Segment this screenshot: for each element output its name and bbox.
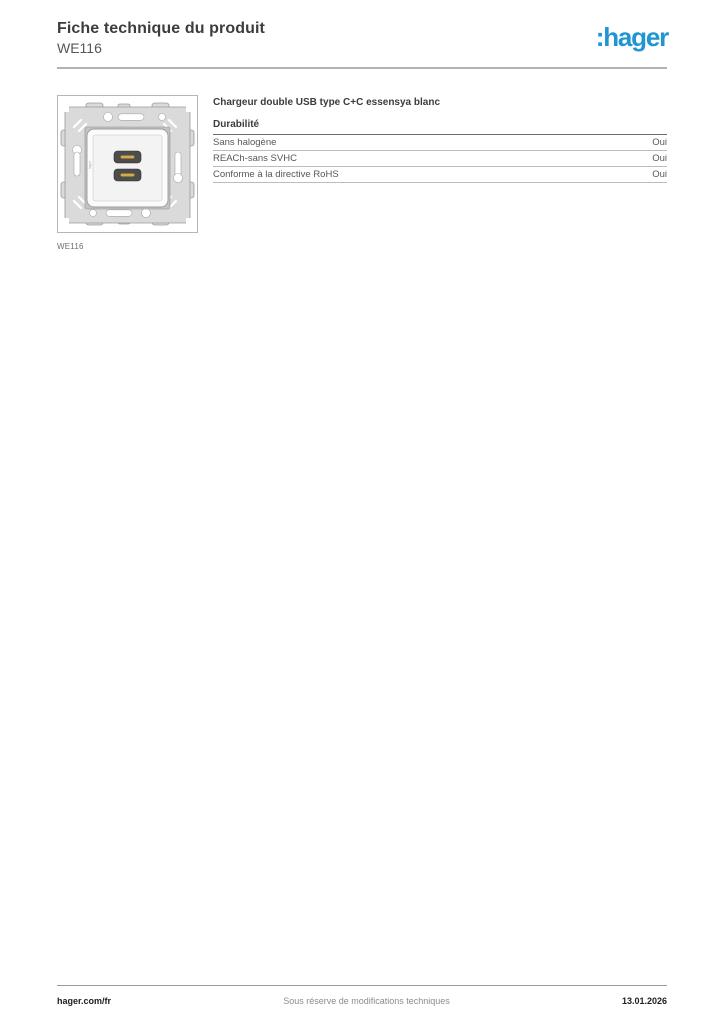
module-brand-marking: hager <box>88 160 92 169</box>
footer-website-link[interactable]: hager.com/fr <box>57 996 111 1006</box>
spec-label: REACh-sans SVHC <box>213 153 297 164</box>
product-image-frame: hager <box>57 95 198 233</box>
footer-date: 13.01.2026 <box>622 996 667 1006</box>
footer-divider <box>57 985 667 986</box>
spec-value: Oui <box>652 169 667 180</box>
datasheet-page: Fiche technique du produit WE116 :hager <box>0 0 724 1024</box>
spec-row: Conforme à la directive RoHS Oui <box>213 167 667 183</box>
spec-row: Sans halogène Oui <box>213 135 667 151</box>
hager-logo: :hager <box>596 22 668 53</box>
footer: hager.com/fr Sous réserve de modificatio… <box>57 996 667 1006</box>
main-content: hager WE116 Chargeur double USB type C+C… <box>57 95 667 251</box>
spec-row: REACh-sans SVHC Oui <box>213 151 667 167</box>
footer-disclaimer: Sous réserve de modifications techniques <box>283 996 450 1006</box>
spec-label: Conforme à la directive RoHS <box>213 169 339 180</box>
product-image-caption: WE116 <box>57 242 198 251</box>
product-image: hager <box>58 96 197 232</box>
product-info-column: Chargeur double USB type C+C essensya bl… <box>213 95 667 251</box>
spec-value: Oui <box>652 137 667 148</box>
section-heading-durability: Durabilité <box>213 119 667 135</box>
product-name: Chargeur double USB type C+C essensya bl… <box>213 96 667 109</box>
spec-label: Sans halogène <box>213 137 276 148</box>
product-image-column: hager WE116 <box>57 95 198 251</box>
spec-value: Oui <box>652 153 667 164</box>
page-title: Fiche technique du produit <box>57 20 265 38</box>
product-reference: WE116 <box>57 40 102 56</box>
header-divider <box>57 67 667 69</box>
module-inner-bevel <box>93 135 162 201</box>
